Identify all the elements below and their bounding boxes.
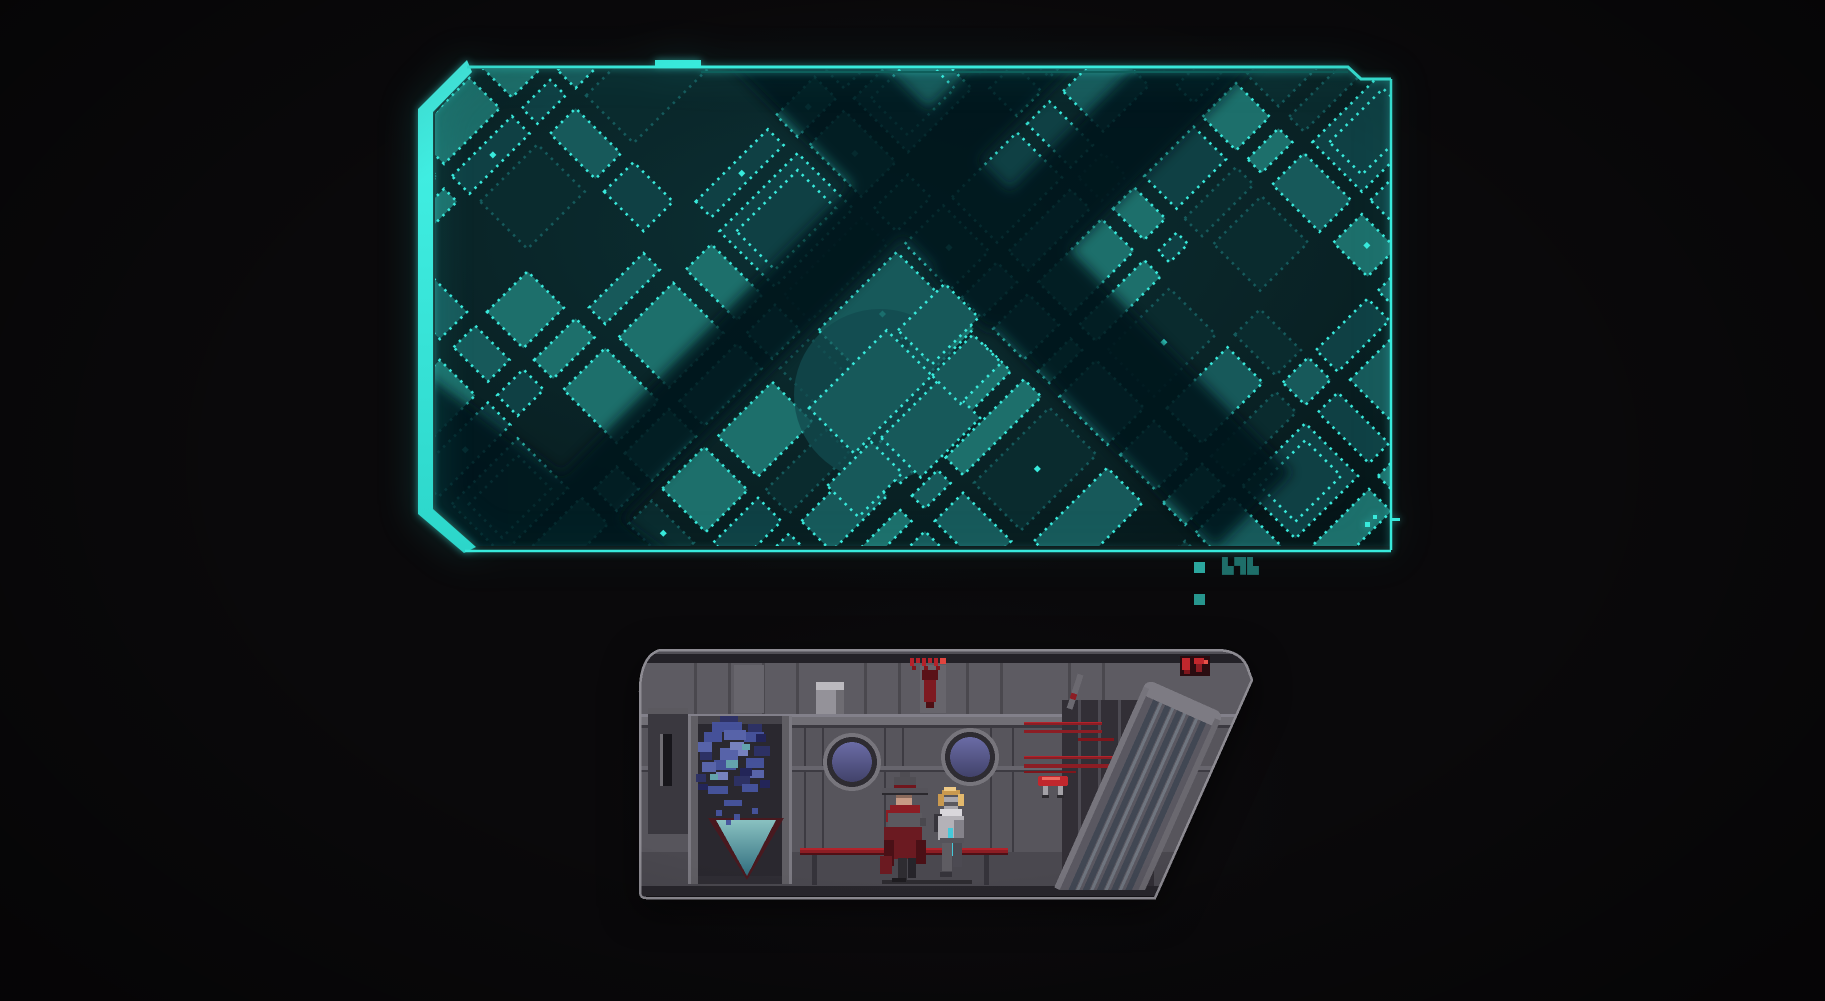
hull-top-band [640,654,1256,663]
map-frame [405,52,1405,564]
map-legend: ▙▜▙ [1194,562,1314,626]
map-legend-row-2 [1194,594,1314,608]
map-frame-dot [1365,522,1370,527]
map-frame-tick [1391,518,1400,521]
spaceship-cabin [634,644,1262,906]
red-lamp-icon [1180,656,1210,676]
ship-interior [634,644,1262,906]
holographic-city-map-panel [405,52,1405,564]
map-frame-left-bar [418,60,476,553]
legend-swatch-icon [1194,562,1205,573]
legend-swatch-icon [1194,594,1205,605]
map-frame-dot [1373,515,1377,519]
porthole-icon [823,733,881,791]
game-viewport[interactable]: ▙▜▙ [0,0,1825,1001]
map-legend-row-1: ▙▜▙ [1194,562,1314,576]
legend-glyph-label: ▙▜▙ [1222,560,1260,572]
porthole-icon [941,728,999,786]
